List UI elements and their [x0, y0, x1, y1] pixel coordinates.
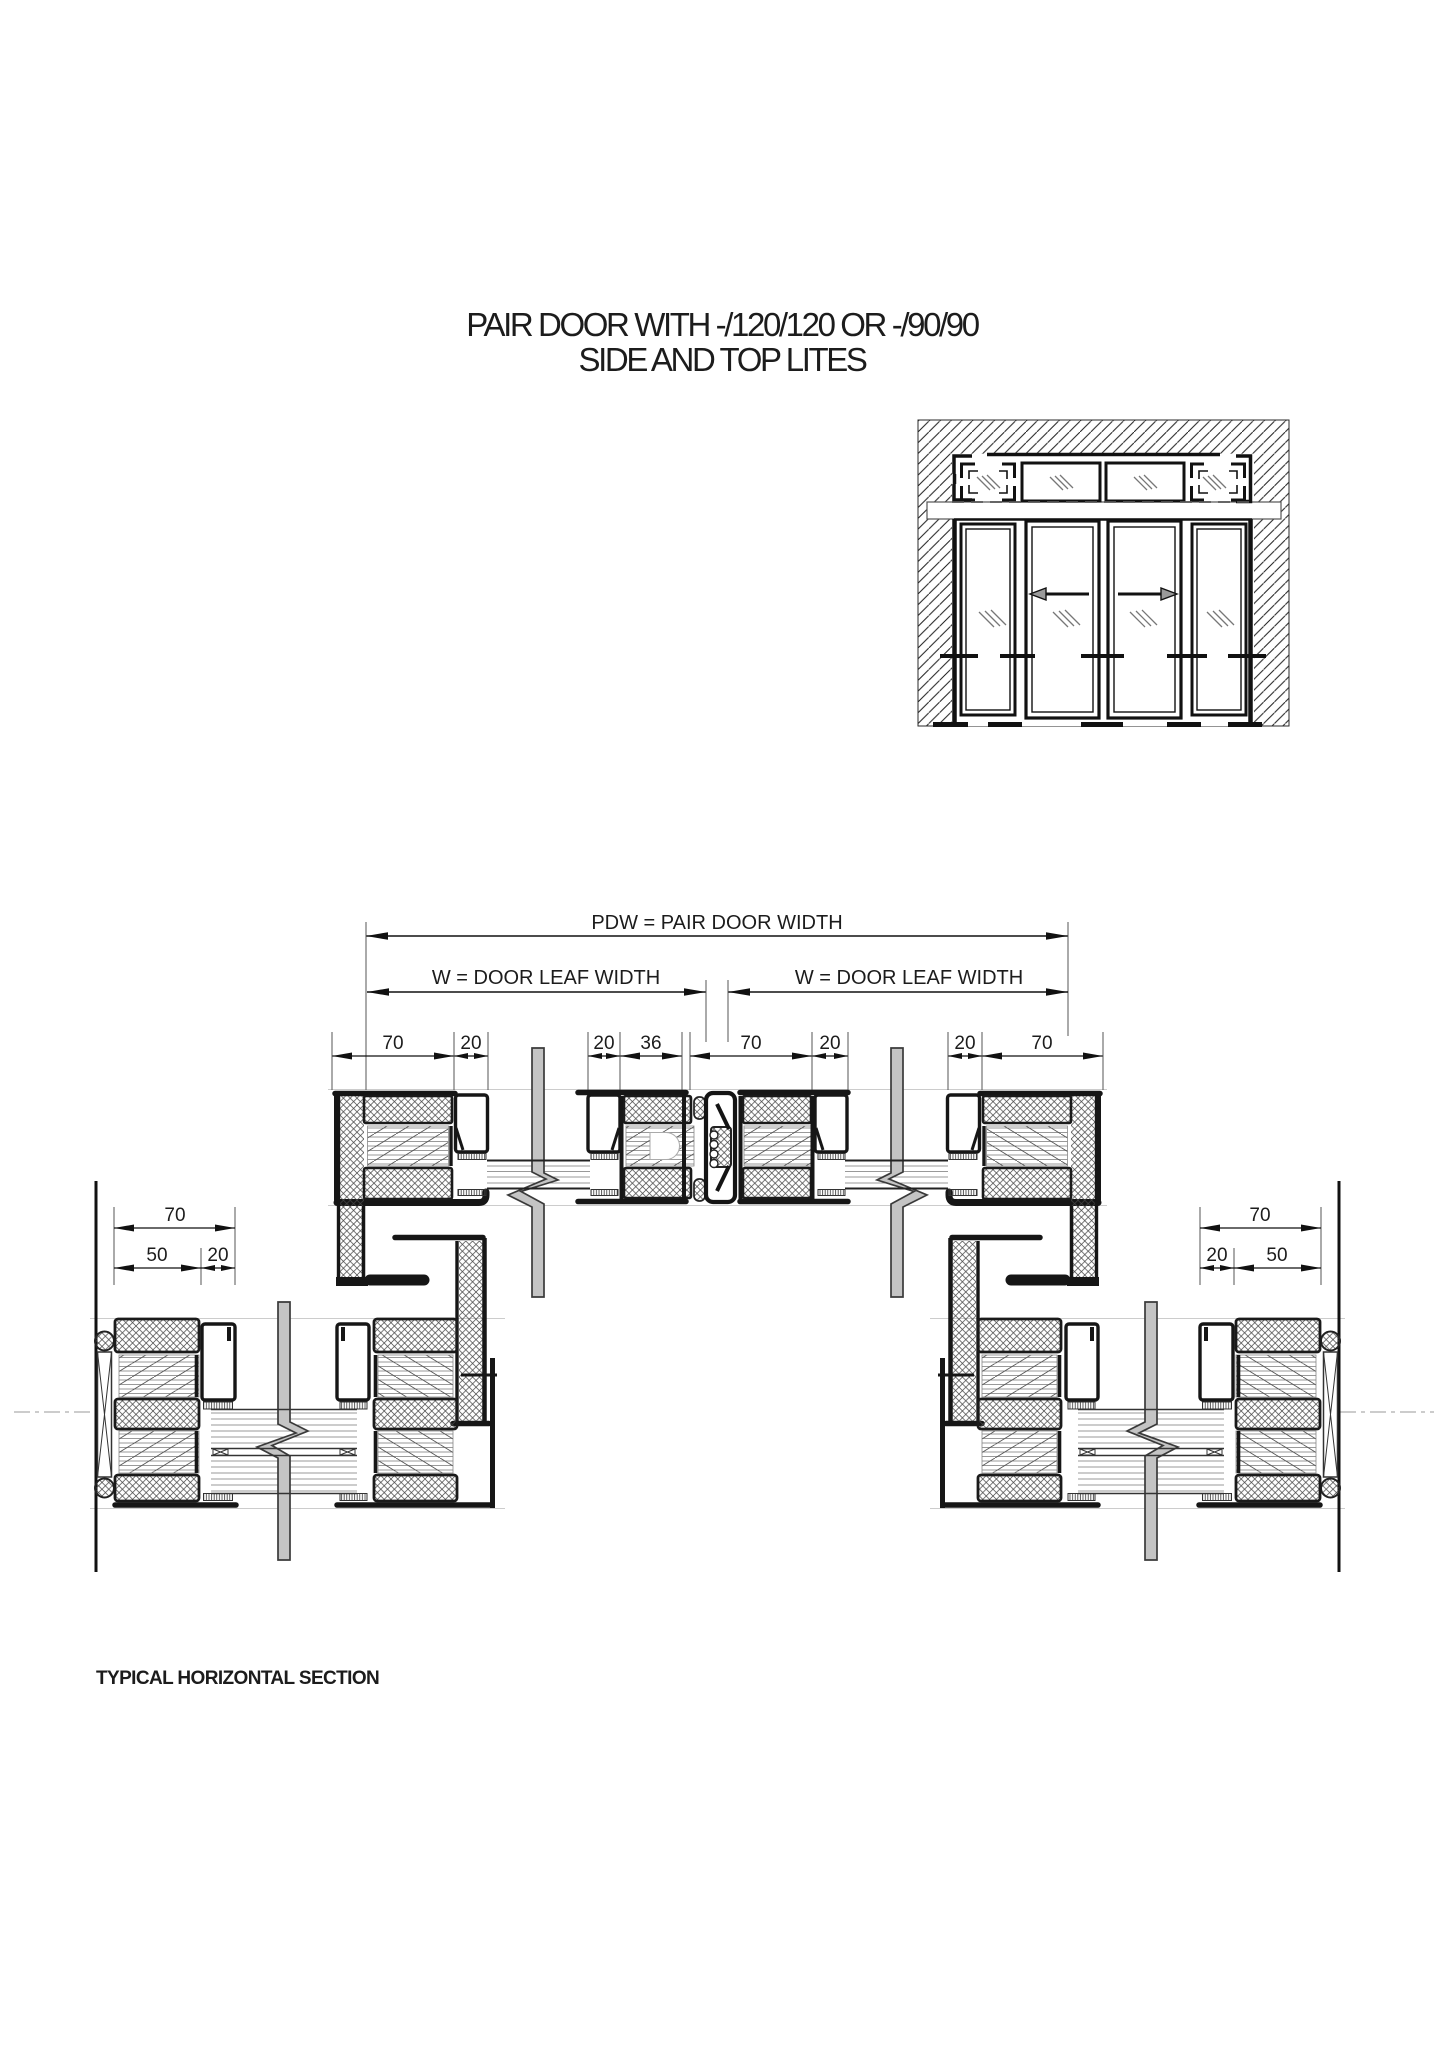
svg-text:70: 70	[1249, 1205, 1270, 1226]
svg-text:PAIR DOOR WITH -/120/120 OR -/: PAIR DOOR WITH -/120/120 OR -/90/90	[466, 306, 979, 343]
svg-text:20: 20	[1206, 1245, 1227, 1266]
svg-text:20: 20	[819, 1033, 840, 1054]
svg-text:70: 70	[164, 1205, 185, 1226]
svg-text:20: 20	[593, 1033, 614, 1054]
svg-text:SIDE AND TOP LITES: SIDE AND TOP LITES	[579, 341, 867, 378]
svg-text:TYPICAL HORIZONTAL SECTION: TYPICAL HORIZONTAL SECTION	[96, 1668, 379, 1689]
svg-text:20: 20	[460, 1033, 481, 1054]
svg-text:20: 20	[954, 1033, 975, 1054]
svg-text:20: 20	[207, 1245, 228, 1266]
svg-text:W = DOOR LEAF WIDTH: W = DOOR LEAF WIDTH	[795, 967, 1023, 989]
svg-text:W = DOOR LEAF WIDTH: W = DOOR LEAF WIDTH	[432, 967, 660, 989]
svg-text:50: 50	[1266, 1245, 1287, 1266]
svg-text:36: 36	[640, 1033, 661, 1054]
svg-text:70: 70	[740, 1033, 761, 1054]
svg-text:PDW = PAIR DOOR WIDTH: PDW = PAIR DOOR WIDTH	[591, 912, 842, 934]
svg-text:50: 50	[146, 1245, 167, 1266]
svg-text:70: 70	[1031, 1033, 1052, 1054]
svg-text:70: 70	[382, 1033, 403, 1054]
